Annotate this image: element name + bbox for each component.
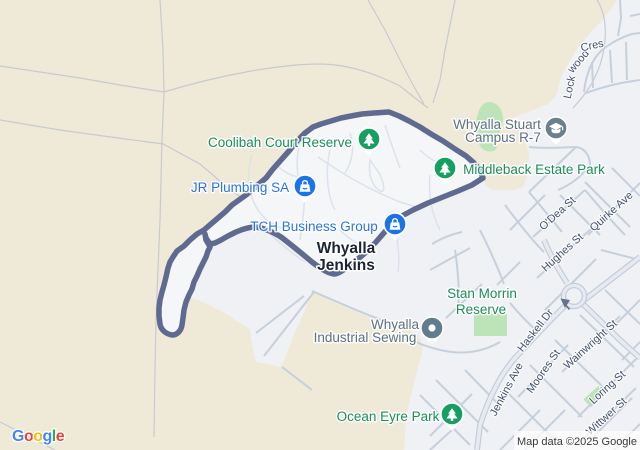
svg-text:Jenkins: Jenkins [317, 257, 375, 274]
svg-text:Industrial Sewing: Industrial Sewing [314, 330, 417, 345]
svg-text:Coolibah Court Reserve: Coolibah Court Reserve [208, 135, 352, 150]
svg-text:Campus R-7: Campus R-7 [465, 130, 541, 145]
svg-text:TCH Business Group: TCH Business Group [250, 219, 378, 234]
svg-text:Whyalla: Whyalla [317, 240, 376, 257]
svg-text:Google: Google [12, 428, 65, 445]
svg-text:Ocean Eyre Park: Ocean Eyre Park [337, 409, 440, 424]
svg-text:Map data ©2025 Google: Map data ©2025 Google [517, 436, 637, 448]
svg-text:JR Plumbing SA: JR Plumbing SA [191, 180, 289, 195]
svg-text:Middleback Estate Park: Middleback Estate Park [463, 162, 605, 177]
svg-text:Stan Morrin: Stan Morrin [447, 286, 517, 301]
svg-text:Reserve: Reserve [456, 302, 506, 317]
